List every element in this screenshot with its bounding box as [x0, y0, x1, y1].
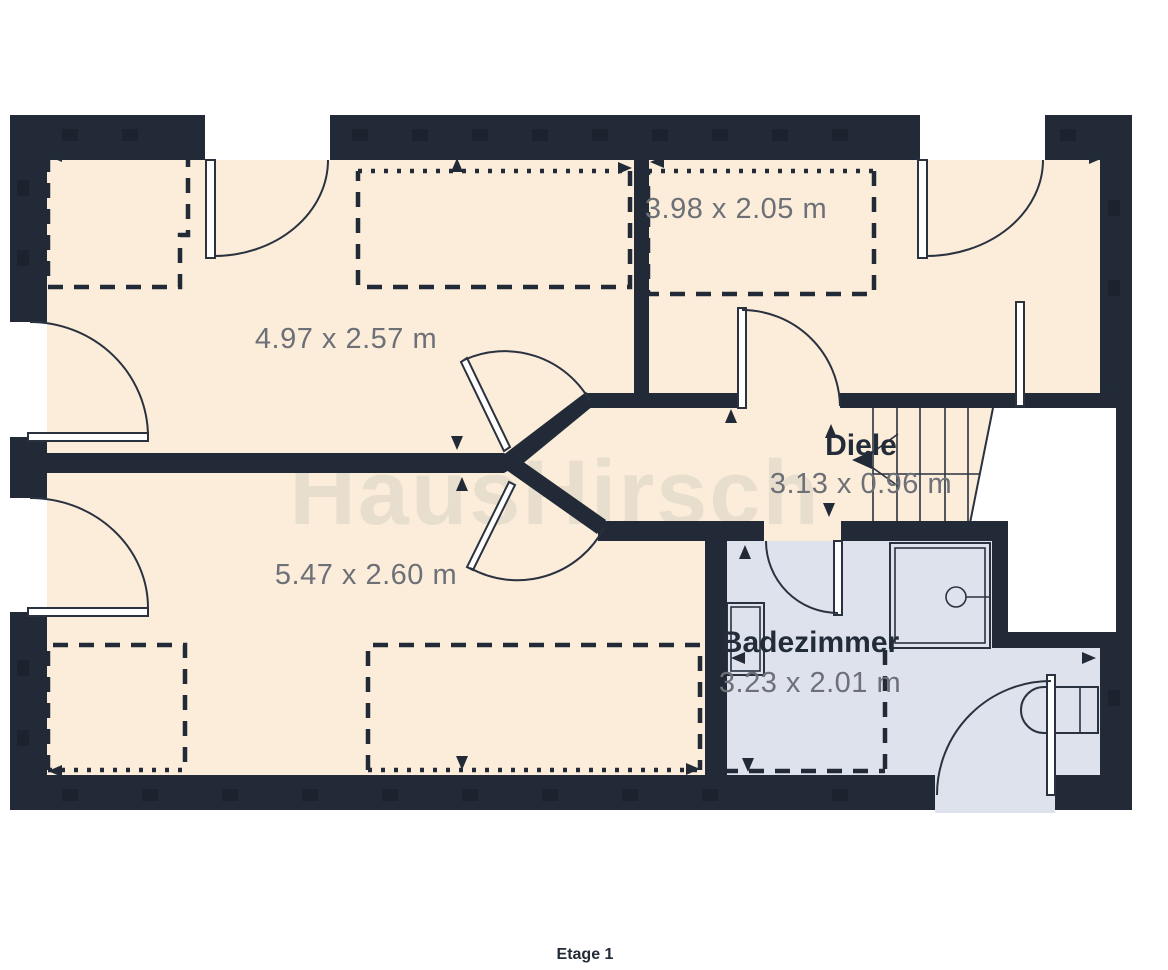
window-door-panel [28, 608, 148, 616]
wall-under-room2-right [840, 393, 1118, 408]
wall-bottom-right [1055, 775, 1132, 810]
wall-left-mid [10, 437, 47, 498]
diele-dimension-label: 3.13 x 0.96 m [770, 468, 952, 500]
wall-void-bottom [992, 632, 1132, 648]
badezimmer-name-label: Badezimmer [721, 626, 900, 659]
bathroom-floor-main [727, 541, 992, 777]
room3-dimension-label: 5.47 x 2.60 m [275, 559, 457, 591]
wall-left-upper [10, 115, 47, 322]
floorplan-drawing: HausHirsch [0, 0, 1168, 970]
bath-door-panel [834, 541, 842, 615]
floorplan-page: HausHirsch [0, 0, 1168, 970]
wall-void-left [992, 523, 1008, 648]
wall-bath-top-left [598, 521, 764, 541]
floor-title: Etage 1 [557, 946, 614, 963]
wall-bath-left [705, 541, 727, 777]
wall-right-lower [1100, 648, 1132, 775]
diele-name-label: Diele [825, 429, 897, 462]
wall-right-upper [1100, 115, 1132, 393]
window-door-panel [28, 433, 148, 441]
bathroom-door-threshold [935, 775, 1055, 813]
room2-dimension-label: 3.98 x 2.05 m [645, 193, 827, 225]
room1-dimension-label: 4.97 x 2.57 m [255, 323, 437, 355]
panel-at-stair-void [1016, 302, 1024, 406]
door-panel [738, 308, 746, 408]
wall-between-left-rooms [47, 453, 504, 473]
wall-right-void [1116, 393, 1132, 648]
door-panel [206, 160, 215, 258]
bath-exterior-door-panel [1047, 675, 1055, 795]
door-panel [918, 160, 927, 258]
badezimmer-dimension-label: 3.23 x 2.01 m [719, 667, 901, 699]
wall-under-room2-left [588, 393, 742, 408]
wall-bath-top-right [841, 521, 1008, 541]
